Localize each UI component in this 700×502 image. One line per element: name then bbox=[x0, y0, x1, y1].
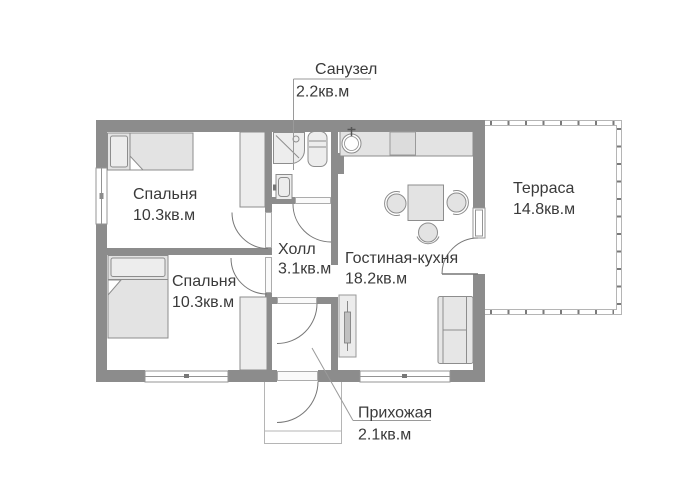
wall-left-upper bbox=[96, 120, 107, 168]
window-bedroom-top bbox=[96, 168, 107, 224]
dining-table bbox=[408, 185, 444, 221]
label-hall-name: Холл bbox=[278, 241, 316, 258]
label-bedroom-top-name: Спальня bbox=[133, 186, 197, 203]
door-bedroom-top bbox=[232, 213, 272, 249]
wall-hall-living-lower bbox=[331, 300, 338, 370]
label-hall-area: 3.1кв.м bbox=[278, 261, 331, 278]
wall-hall-south-right bbox=[317, 297, 338, 304]
label-bathroom-area: 2.2кв.м bbox=[296, 84, 349, 101]
label-bathroom-name: Санузел bbox=[315, 61, 377, 78]
shower-cabin bbox=[274, 133, 305, 164]
chair-bottom bbox=[417, 223, 439, 244]
chair-left bbox=[385, 192, 406, 216]
door-bedroom-bottom bbox=[231, 258, 272, 295]
floor-plan: Санузел 2.2кв.м Спальня 10.3кв.м Спальня… bbox=[0, 0, 700, 502]
tap-symbol bbox=[273, 185, 277, 191]
label-bedroom-bottom-name: Спальня bbox=[172, 273, 236, 290]
window-terrace-sidelight bbox=[473, 208, 485, 238]
wall-junction bbox=[265, 248, 272, 255]
wall-between-bedrooms bbox=[107, 248, 265, 255]
wall-right-upper bbox=[473, 120, 485, 208]
door-swing-symbol bbox=[277, 382, 318, 423]
toilet bbox=[308, 132, 327, 167]
wall-bottom-1 bbox=[96, 370, 145, 382]
wall-bottom-2 bbox=[228, 370, 277, 382]
stove bbox=[390, 132, 416, 155]
door-bathroom bbox=[293, 198, 331, 243]
kitchen-counter bbox=[340, 127, 473, 156]
label-bedroom-bottom-area: 10.3кв.м bbox=[172, 294, 234, 311]
label-entry-area: 2.1кв.м bbox=[358, 427, 411, 444]
window-bedroom-bottom bbox=[145, 371, 228, 382]
dining-set bbox=[385, 185, 469, 244]
wall-top bbox=[96, 120, 485, 132]
wall-bottom-3 bbox=[318, 370, 360, 382]
label-terrace-area: 14.8кв.м bbox=[513, 201, 575, 218]
door-entrance bbox=[277, 372, 318, 423]
sofa bbox=[438, 297, 473, 364]
label-entry-name: Прихожая bbox=[358, 405, 432, 422]
label-bedroom-top-area: 10.3кв.м bbox=[133, 207, 195, 224]
wardrobe-top-bedroom bbox=[240, 132, 265, 207]
washbasin bbox=[273, 175, 292, 200]
label-terrace-name: Терраса bbox=[513, 180, 574, 197]
pillow-symbol bbox=[111, 136, 128, 167]
door-swing-symbol bbox=[232, 213, 268, 249]
door-hall-entry bbox=[277, 298, 317, 344]
double-bed-top bbox=[108, 133, 194, 170]
label-living-area: 18.2кв.м bbox=[345, 271, 407, 288]
window-living bbox=[360, 371, 450, 382]
floor-plan-drawing: Санузел 2.2кв.м Спальня 10.3кв.м Спальня… bbox=[0, 0, 700, 502]
pillow-symbol bbox=[111, 258, 165, 277]
door-swing-symbol bbox=[231, 258, 267, 294]
wall-left-lower bbox=[96, 224, 107, 382]
tall-cabinet bbox=[339, 295, 356, 357]
wall-right-lower bbox=[473, 274, 485, 382]
double-bed-bottom bbox=[108, 256, 168, 339]
wall-hall-living-upper bbox=[331, 132, 338, 265]
chair-right bbox=[447, 191, 468, 215]
wardrobe-bottom-bedroom bbox=[240, 297, 267, 370]
door-swing-symbol bbox=[277, 304, 317, 344]
door-swing-symbol bbox=[293, 204, 331, 242]
label-living-name: Гостиная-кухня bbox=[345, 250, 458, 267]
